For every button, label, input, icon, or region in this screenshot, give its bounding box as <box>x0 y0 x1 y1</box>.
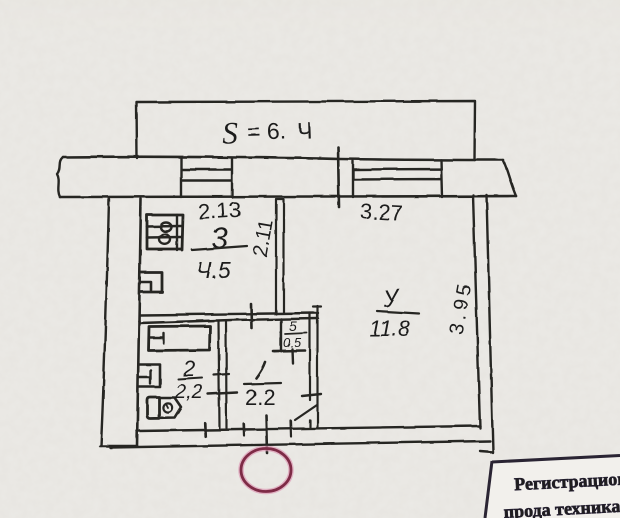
svg-text:3: 3 <box>211 222 228 255</box>
svg-text:11.8: 11.8 <box>369 316 411 341</box>
svg-text:S: S <box>221 115 238 151</box>
svg-text:Ч.5: Ч.5 <box>196 257 231 283</box>
svg-text:Ч: Ч <box>297 118 313 145</box>
svg-text:2.2: 2.2 <box>245 385 276 410</box>
svg-text:= 6.: = 6. <box>247 117 287 144</box>
svg-text:5: 5 <box>289 318 297 334</box>
svg-text:3.27: 3.27 <box>359 198 403 225</box>
svg-text:2,2: 2,2 <box>174 381 203 403</box>
svg-text:2.13: 2.13 <box>197 197 241 225</box>
svg-text:0.5: 0.5 <box>283 335 302 350</box>
